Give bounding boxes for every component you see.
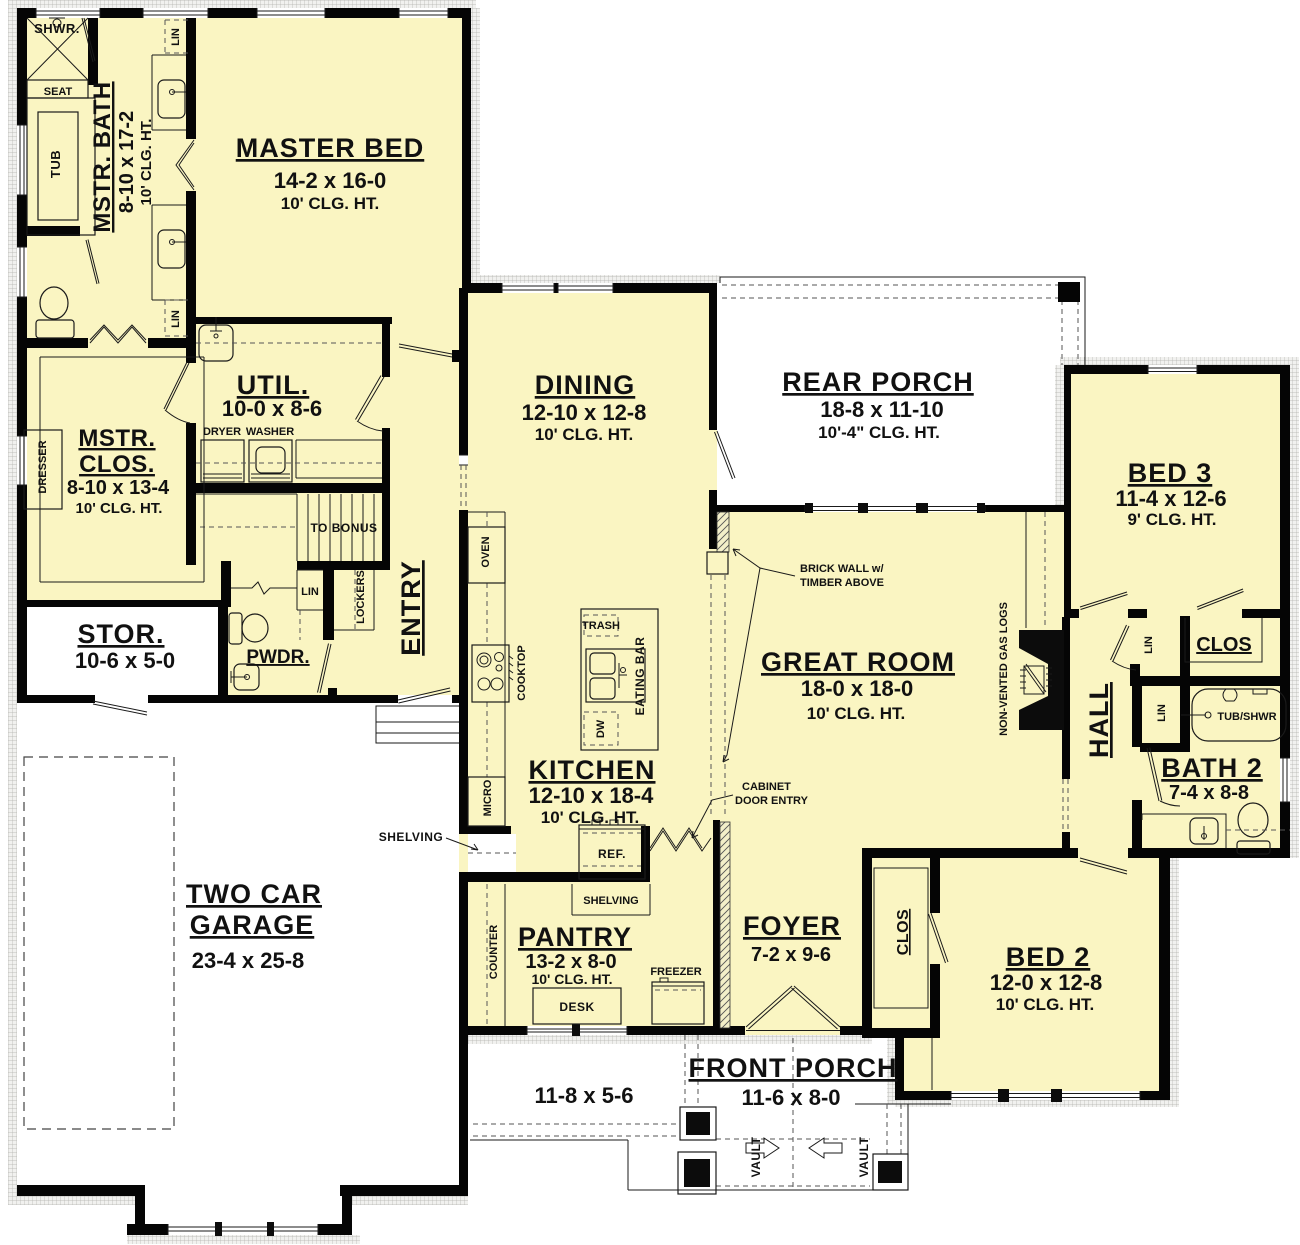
svg-text:LIN: LIN (170, 310, 182, 328)
svg-text:12-10 x 18-4: 12-10 x 18-4 (529, 783, 655, 808)
svg-text:10-6 x 5-0: 10-6 x 5-0 (75, 648, 175, 673)
svg-text:DRYER: DRYER (203, 426, 241, 438)
svg-text:10' CLG. HT.: 10' CLG. HT. (531, 971, 612, 987)
svg-text:10' CLG. HT.: 10' CLG. HT. (281, 194, 380, 213)
svg-text:18-0 x 18-0: 18-0 x 18-0 (801, 676, 914, 701)
svg-text:SHWR.: SHWR. (34, 21, 80, 36)
svg-text:9' CLG. HT.: 9' CLG. HT. (1127, 510, 1216, 529)
svg-text:KITCHEN: KITCHEN (529, 755, 656, 785)
svg-text:LOCKERS: LOCKERS (355, 570, 367, 624)
svg-text:TUB/SHWR: TUB/SHWR (1217, 711, 1276, 723)
svg-text:MSTR. BATH: MSTR. BATH (89, 81, 116, 232)
svg-text:TRASH: TRASH (582, 620, 620, 632)
svg-text:DW: DW (595, 719, 607, 738)
svg-text:10-0 x 8-6: 10-0 x 8-6 (222, 396, 322, 421)
svg-text:DOOR ENTRY: DOOR ENTRY (735, 795, 809, 807)
svg-text:WASHER: WASHER (246, 426, 294, 438)
svg-text:10' CLG. HT.: 10' CLG. HT. (535, 425, 634, 444)
svg-text:12-10 x 12-8: 12-10 x 12-8 (522, 400, 647, 425)
svg-text:MSTR.: MSTR. (78, 425, 155, 452)
svg-text:SHELVING: SHELVING (583, 895, 638, 907)
svg-text:CLOS.: CLOS. (79, 451, 155, 478)
svg-text:LIN: LIN (301, 586, 319, 598)
svg-text:LIN: LIN (1143, 636, 1155, 654)
svg-text:SHELVING: SHELVING (379, 830, 443, 844)
svg-text:11-4 x 12-6: 11-4 x 12-6 (1115, 486, 1226, 511)
svg-text:BED 2: BED 2 (1006, 942, 1091, 972)
svg-text:NON-VENTED GAS LOGS: NON-VENTED GAS LOGS (998, 602, 1010, 736)
svg-text:8-10 x 17-2: 8-10 x 17-2 (116, 111, 138, 213)
svg-text:HALL: HALL (1084, 682, 1114, 758)
svg-text:FRONT PORCH: FRONT PORCH (689, 1053, 898, 1083)
svg-text:LIN: LIN (1156, 704, 1168, 722)
svg-text:23-4 x 25-8: 23-4 x 25-8 (192, 948, 305, 973)
svg-text:MICRO: MICRO (482, 779, 494, 816)
svg-text:BATH 2: BATH 2 (1161, 753, 1263, 783)
svg-text:LIN: LIN (170, 28, 182, 46)
svg-text:TUB: TUB (48, 150, 63, 178)
svg-text:MASTER BED: MASTER BED (236, 133, 425, 163)
svg-text:COUNTER: COUNTER (488, 925, 500, 979)
svg-text:BED 3: BED 3 (1128, 458, 1213, 488)
svg-text:10' CLG. HT.: 10' CLG. HT. (541, 808, 640, 827)
svg-text:EATING BAR: EATING BAR (633, 637, 647, 716)
svg-text:REAR PORCH: REAR PORCH (782, 367, 974, 397)
svg-text:TWO CAR: TWO CAR (186, 879, 322, 909)
svg-text:14-2 x 16-0: 14-2 x 16-0 (274, 168, 387, 193)
svg-text:GARAGE: GARAGE (190, 910, 315, 940)
svg-text:PANTRY: PANTRY (518, 922, 632, 952)
svg-text:10' CLG. HT.: 10' CLG. HT. (76, 500, 163, 517)
svg-text:TIMBER ABOVE: TIMBER ABOVE (800, 577, 884, 589)
svg-text:10'-4" CLG. HT.: 10'-4" CLG. HT. (818, 423, 940, 442)
svg-text:10' CLG. HT.: 10' CLG. HT. (807, 704, 906, 723)
svg-text:DESK: DESK (559, 1000, 594, 1014)
svg-text:COOKTOP: COOKTOP (516, 645, 528, 700)
svg-text:GREAT ROOM: GREAT ROOM (761, 647, 955, 677)
svg-text:11-8 x 5-6: 11-8 x 5-6 (534, 1083, 633, 1108)
svg-text:13-2 x 8-0: 13-2 x 8-0 (525, 951, 616, 973)
svg-text:BRICK WALL w/: BRICK WALL w/ (800, 563, 884, 575)
svg-text:PWDR.: PWDR. (246, 647, 309, 668)
svg-text:12-0 x 12-8: 12-0 x 12-8 (990, 970, 1103, 995)
svg-text:18-8 x 11-10: 18-8 x 11-10 (820, 397, 944, 422)
svg-text:CLOS: CLOS (1196, 634, 1252, 656)
svg-text:7-4 x 8-8: 7-4 x 8-8 (1169, 782, 1249, 804)
svg-text:DRESSER: DRESSER (37, 440, 49, 493)
svg-text:OVEN: OVEN (480, 536, 492, 567)
svg-text:FREEZER: FREEZER (650, 966, 701, 978)
svg-text:8-10 x 13-4: 8-10 x 13-4 (67, 477, 170, 499)
svg-text:VAULT: VAULT (857, 1136, 871, 1177)
svg-text:REF.: REF. (598, 847, 626, 861)
svg-text:7-2 x 9-6: 7-2 x 9-6 (751, 944, 831, 966)
svg-text:ENTRY: ENTRY (396, 560, 426, 656)
svg-text:11-6 x 8-0: 11-6 x 8-0 (741, 1085, 840, 1110)
svg-text:FOYER: FOYER (743, 911, 841, 941)
svg-text:DINING: DINING (535, 370, 636, 400)
svg-text:SEAT: SEAT (44, 86, 73, 98)
svg-text:TO BONUS: TO BONUS (310, 521, 377, 535)
svg-text:STOR.: STOR. (77, 619, 164, 649)
svg-text:CABINET: CABINET (742, 781, 791, 793)
svg-text:10' CLG. HT.: 10' CLG. HT. (996, 995, 1095, 1014)
svg-text:10' CLG. HT.: 10' CLG. HT. (138, 119, 155, 206)
svg-text:CLOS: CLOS (895, 909, 912, 955)
